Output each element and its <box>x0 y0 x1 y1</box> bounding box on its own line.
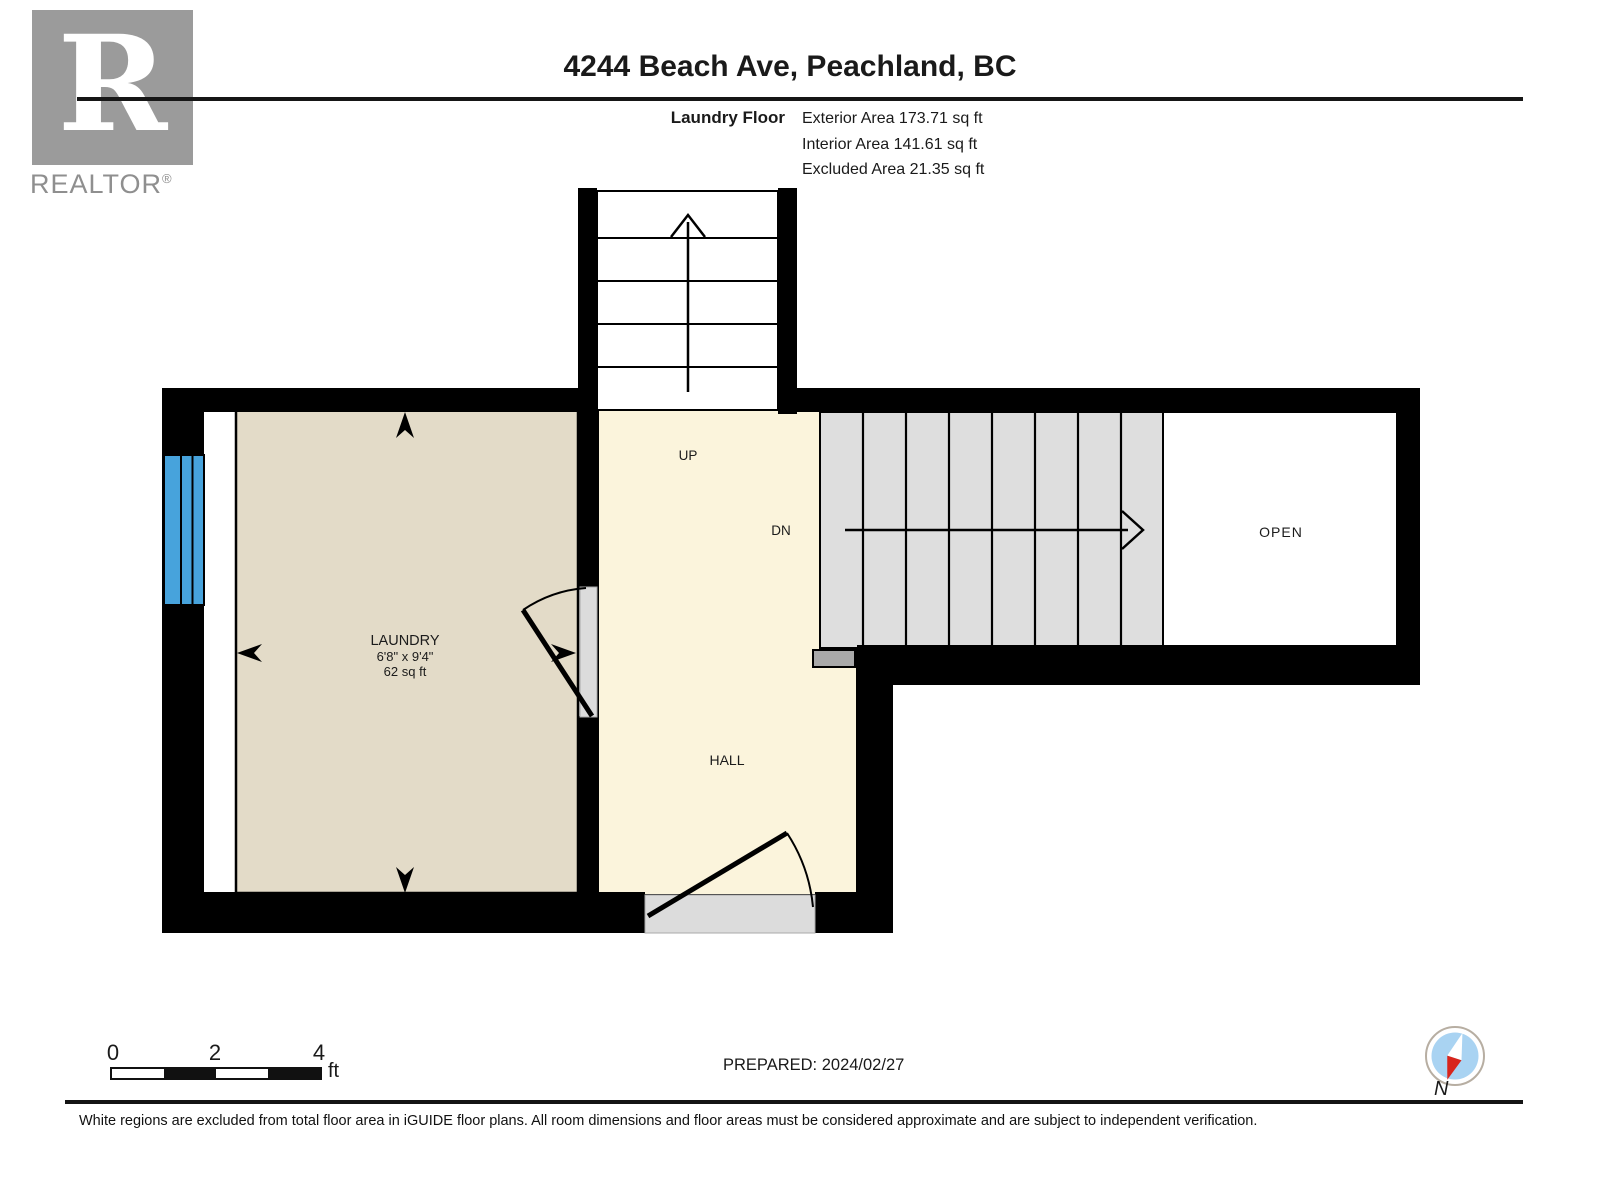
scale-unit: ft <box>328 1060 339 1083</box>
scale-bar <box>110 1067 322 1080</box>
top-wall-left <box>162 388 597 412</box>
laundry-area: 62 sq ft <box>384 664 427 679</box>
bottom-wall-right <box>815 892 893 933</box>
floor-name: Laundry Floor <box>540 108 785 128</box>
prepared-date: PREPARED: 2024/02/27 <box>723 1056 904 1075</box>
hall-right-wall <box>857 648 893 933</box>
excluded-area: Excluded Area 21.35 sq ft <box>802 157 984 183</box>
laundry-dimensions: 6'8" x 9'4" <box>377 649 434 664</box>
scale-segment <box>268 1069 320 1078</box>
bottom-wall-left <box>162 892 645 933</box>
footer-divider <box>65 1100 1523 1104</box>
disclaimer-text: White regions are excluded from total fl… <box>79 1113 1539 1129</box>
area-stats: Exterior Area 173.71 sq ft Interior Area… <box>802 106 984 183</box>
north-label: N <box>1434 1078 1474 1101</box>
page-title: 4244 Beach Ave, Peachland, BC <box>0 50 1580 84</box>
header-divider <box>77 97 1523 101</box>
floor-plan: UP DN LAUNDRY 6'8" x 9'4" 62 sq ft HALL … <box>140 180 1440 950</box>
interior-area: Interior Area 141.61 sq ft <box>802 132 984 158</box>
right-exterior-wall <box>1397 388 1420 685</box>
realtor-logo: R <box>32 10 193 165</box>
top-wall-right <box>797 388 1420 412</box>
open-label: OPEN <box>1259 524 1303 540</box>
scale-segment <box>164 1069 216 1078</box>
window <box>164 455 204 605</box>
laundry-label: LAUNDRY <box>370 633 439 649</box>
laundry-hall-wall-upper <box>578 410 597 588</box>
scale-segment <box>216 1069 268 1078</box>
stairwell-right-wall <box>778 188 797 414</box>
laundry-hall-wall-lower <box>578 716 597 895</box>
scale-tick-0: 0 <box>101 1040 125 1066</box>
scale-segment <box>112 1069 164 1078</box>
wall-below-stairs <box>857 645 1420 685</box>
exterior-area: Exterior Area 173.71 sq ft <box>802 106 984 132</box>
stairwell-left-wall <box>578 188 597 412</box>
excluded-strip <box>204 410 236 893</box>
scale-tick-2: 2 <box>203 1040 227 1066</box>
stair-landing-marker <box>813 650 855 667</box>
hall-label: HALL <box>709 752 744 768</box>
up-label: UP <box>679 448 698 463</box>
realtor-logo-r: R <box>58 19 168 151</box>
dn-label: DN <box>771 523 791 538</box>
